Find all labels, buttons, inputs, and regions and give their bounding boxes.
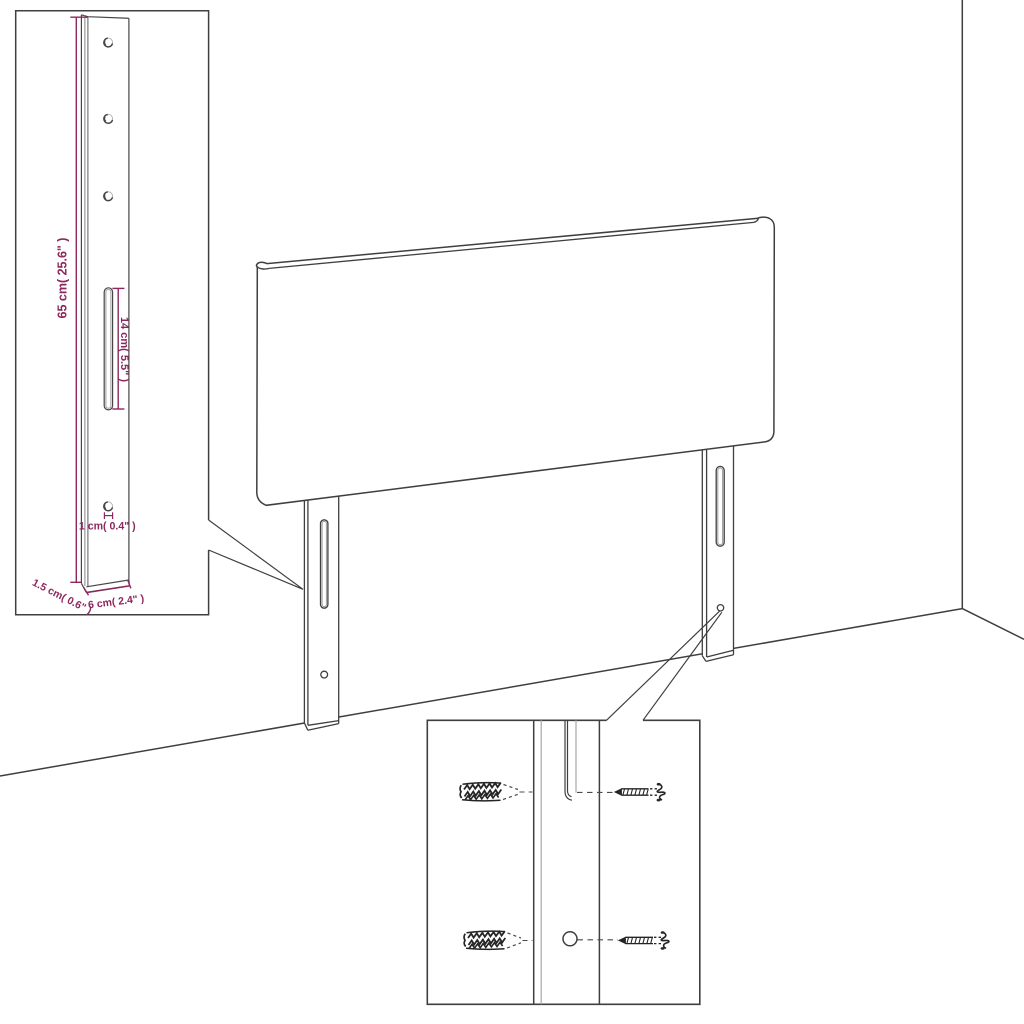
svg-text:65 cm( 25.6" ): 65 cm( 25.6" ) bbox=[56, 238, 70, 319]
svg-text:1 cm( 0.4" ): 1 cm( 0.4" ) bbox=[79, 521, 136, 533]
svg-text:14 cm( 5.5" ): 14 cm( 5.5" ) bbox=[118, 317, 130, 382]
